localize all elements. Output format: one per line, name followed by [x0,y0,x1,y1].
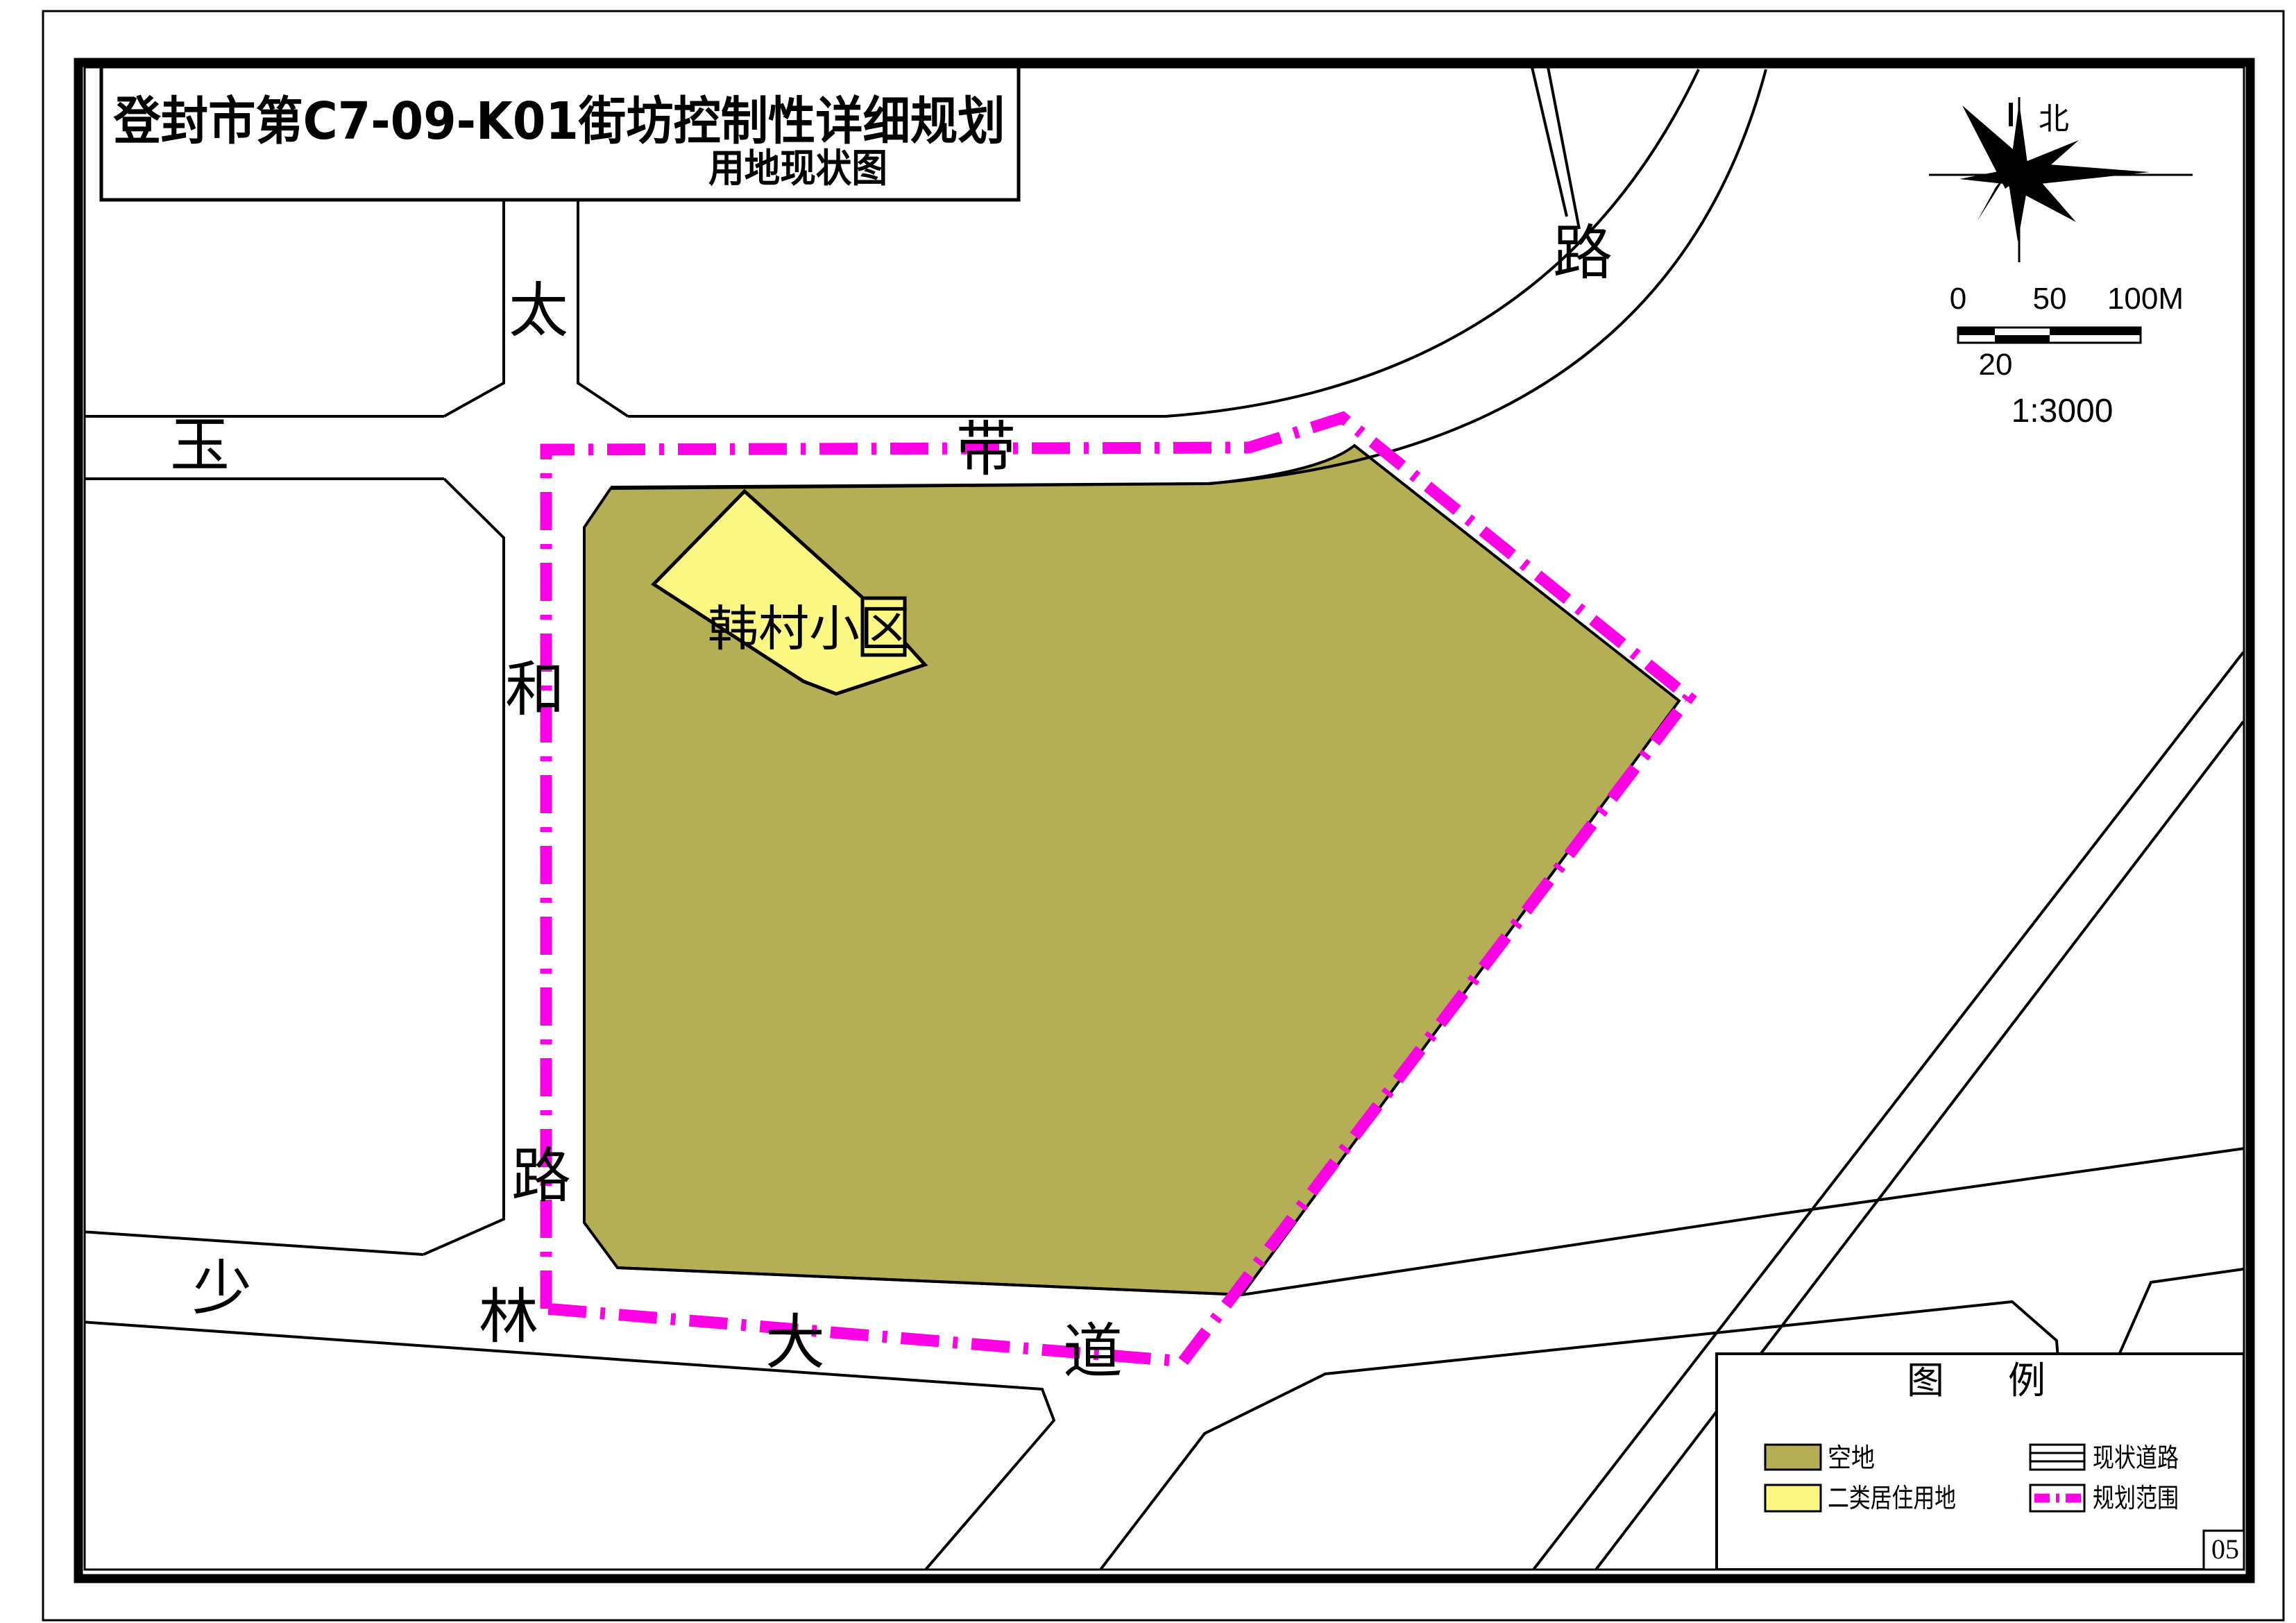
road-label-dao: 道 [1063,1317,1123,1386]
road-label-da: 大 [765,1308,825,1377]
scale-tick-20: 20 [1979,348,2013,382]
legend-item-label: 规划范围 [2093,1483,2179,1513]
road-label-shao: 少 [192,1254,252,1323]
legend-item-residential: 二类居住用地 [1765,1483,1956,1513]
residential-swatch-icon [1765,1485,1821,1511]
page-number: 05 [2211,1533,2239,1565]
existing-road-symbol-icon [2030,1445,2084,1470]
legend-item-label: 现状道路 [2093,1443,2179,1473]
road-label-lin: 林 [479,1282,538,1352]
north-label: 北 [2039,101,2069,137]
scale-ratio: 1:3000 [2012,393,2114,430]
legend-item-existing-road: 现状道路 [2030,1443,2179,1473]
road-label-yu: 玉 [170,411,230,480]
vacant-land-swatch-icon [1765,1445,1821,1470]
title-block: 登封市第C7-09-K01街坊控制性详细规划 用地现状图 [101,65,1019,200]
planning-map: 太 和 路 玉 带 路 少 林 大 道 韩村小区 登封市第C7-09-K01街坊… [0,0,2296,1623]
site-label: 韩村小区 [708,600,910,657]
scale-tick-100: 100M [2107,282,2184,316]
page-subtitle: 用地现状图 [708,146,887,192]
legend-item-label: 二类居住用地 [1828,1483,1956,1513]
legend-item-planning-scope: 规划范围 [2030,1483,2179,1513]
legend-title: 图例 [1907,1359,2109,1402]
road-label-lu-diagonal: 路 [1553,219,1613,288]
legend: 图例 空地 二类居住用地 现状道路 规划范围 [1717,1354,2247,1570]
page-title: 登封市第C7-09-K01街坊控制性详细规划 [113,92,1005,151]
road-label-lu-vertical: 路 [511,1141,571,1211]
road-label-dai: 带 [956,415,1016,484]
scale-tick-0: 0 [1950,282,1966,316]
legend-item-vacant-land: 空地 [1765,1443,1875,1473]
road-label-tai: 太 [509,276,568,346]
road-label-he: 和 [505,655,565,724]
legend-item-label: 空地 [1828,1443,1875,1473]
scale-tick-50: 50 [2033,282,2067,316]
